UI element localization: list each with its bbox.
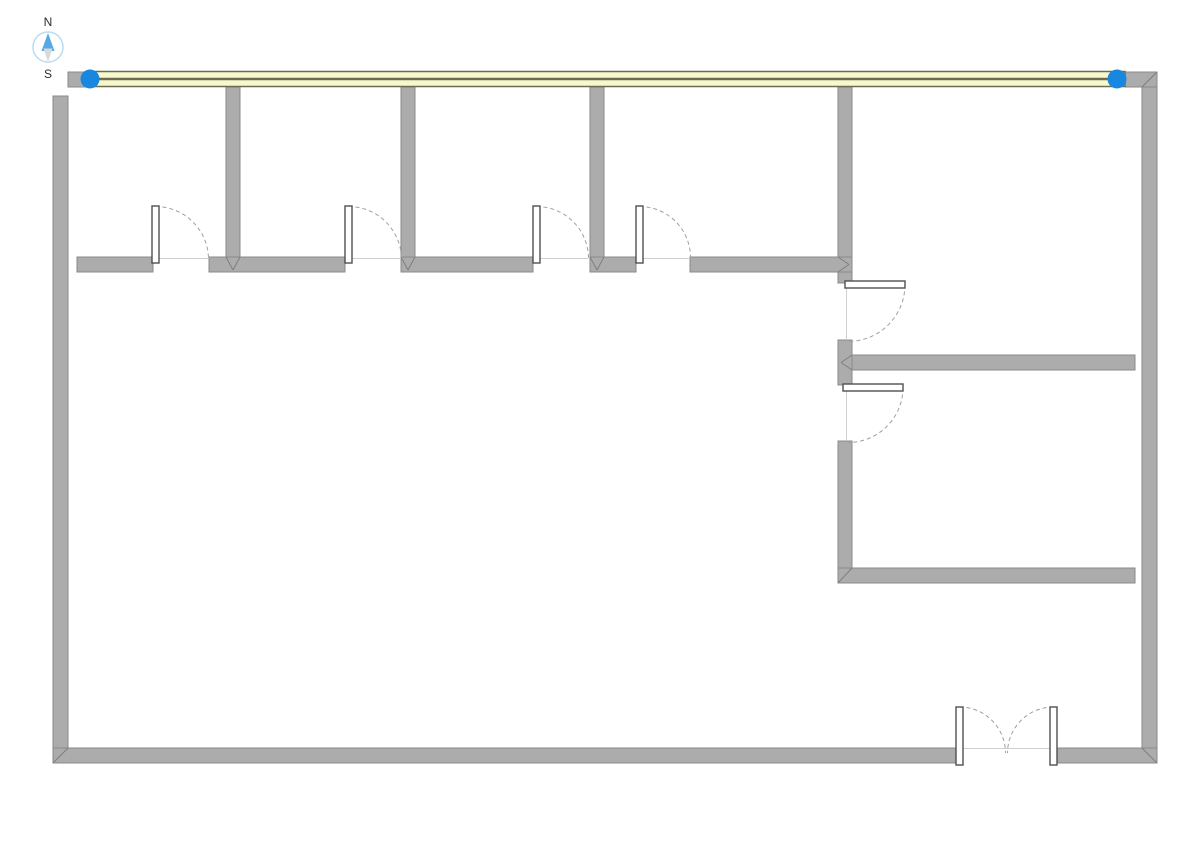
floorplan-svg: N S xyxy=(0,0,1191,842)
wall-partition-1[interactable] xyxy=(226,87,240,257)
door-leaf-5[interactable] xyxy=(845,281,905,288)
compass-north-label: N xyxy=(44,15,53,29)
wall-top-right-stub[interactable] xyxy=(1125,72,1157,87)
wall-corridor-seg-2[interactable] xyxy=(209,257,345,272)
door-leaf-6[interactable] xyxy=(843,384,903,391)
wall-partition-4-upper[interactable] xyxy=(838,87,852,283)
door-swing-arc-5 xyxy=(848,285,905,342)
wall-corridor-seg-5[interactable] xyxy=(690,257,852,272)
wall-right-wing-lower[interactable] xyxy=(838,568,1135,583)
door-swing-arc-6 xyxy=(848,388,903,443)
compass-south-needle-icon xyxy=(44,49,53,63)
wall-partition-3[interactable] xyxy=(590,87,604,257)
drawing-canvas[interactable]: N S xyxy=(0,0,1191,842)
selection-handle-start[interactable] xyxy=(81,70,100,89)
wall-partition-4-mid[interactable] xyxy=(838,340,852,385)
wall-partition-4-lower[interactable] xyxy=(838,441,852,583)
wall-bottom-right[interactable] xyxy=(1056,748,1157,763)
wall-corridor-seg-1[interactable] xyxy=(77,257,153,272)
compass: N S xyxy=(33,15,63,81)
door-leaf-1[interactable] xyxy=(152,206,159,263)
walls-layer xyxy=(53,72,1157,763)
door-leaf-7-right[interactable] xyxy=(1050,707,1057,765)
door-leaf-4[interactable] xyxy=(636,206,643,263)
wall-corridor-seg-3[interactable] xyxy=(401,257,533,272)
compass-south-label: S xyxy=(44,67,52,81)
wall-left-exterior[interactable] xyxy=(53,96,68,763)
door-swing-arc-7-right xyxy=(1008,707,1054,753)
doors-layer xyxy=(152,206,1057,765)
wall-partition-2[interactable] xyxy=(401,87,415,257)
door-swing-arc-2 xyxy=(349,207,402,260)
wall-right-exterior[interactable] xyxy=(1142,87,1157,763)
compass-north-needle-icon xyxy=(42,33,55,51)
door-swing-arc-1 xyxy=(156,207,209,260)
door-swing-arc-3 xyxy=(537,207,589,259)
door-leaf-3[interactable] xyxy=(533,206,540,263)
door-leaf-7-left[interactable] xyxy=(956,707,963,765)
wall-bottom-left[interactable] xyxy=(53,748,957,763)
selection-handle-end[interactable] xyxy=(1108,70,1127,89)
door-swing-arc-7-left xyxy=(960,707,1006,753)
door-leaf-2[interactable] xyxy=(345,206,352,263)
selection-layer xyxy=(81,70,1127,89)
door-swing-arc-4 xyxy=(640,207,691,258)
wall-right-wing-upper[interactable] xyxy=(852,355,1135,370)
